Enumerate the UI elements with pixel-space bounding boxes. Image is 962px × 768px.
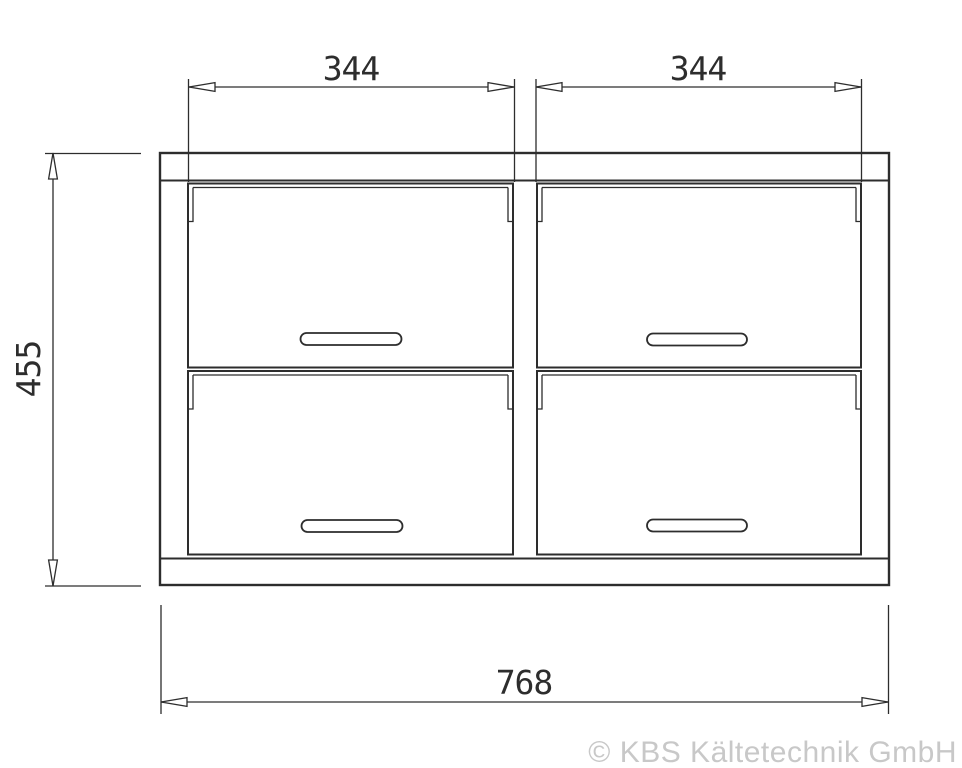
drawer-top-left (188, 184, 513, 368)
cabinet-outline (160, 153, 889, 585)
arrow-left-icon (189, 83, 215, 92)
dimension-label: 344 (670, 49, 727, 88)
copyright-text: © KBS Kältetechnik GmbH (588, 736, 957, 768)
drawer-bottom-left (188, 371, 513, 555)
drawer-handle-icon (647, 520, 747, 532)
drawer-handle-icon (301, 333, 402, 345)
arrow-right-icon (862, 698, 888, 707)
drawer-top-right (537, 184, 861, 368)
technical-drawing: 344 344 455 768 © KBS Kältetechnik GmbH (0, 0, 962, 768)
dimension-label: 768 (496, 663, 553, 702)
arrow-up-icon (49, 153, 58, 179)
arrow-down-icon (49, 560, 58, 586)
cabinet-body (160, 153, 889, 585)
drawer-bottom-right (537, 371, 861, 555)
dimension-label: 455 (9, 341, 48, 398)
dimension-bottom-total: 768 (161, 605, 889, 714)
dimension-top-right: 344 (536, 49, 862, 182)
drawer-handle-icon (647, 334, 747, 346)
dimension-label: 344 (323, 49, 380, 88)
drawing-canvas: 344 344 455 768 © KBS Kältetechnik GmbH (0, 0, 962, 768)
dimension-left-height: 455 (9, 153, 141, 586)
dimension-top-left: 344 (189, 49, 515, 182)
drawer-handle-icon (302, 520, 403, 532)
arrow-right-icon (835, 83, 861, 92)
arrow-left-icon (536, 83, 562, 92)
arrow-right-icon (488, 83, 514, 92)
arrow-left-icon (161, 698, 187, 707)
